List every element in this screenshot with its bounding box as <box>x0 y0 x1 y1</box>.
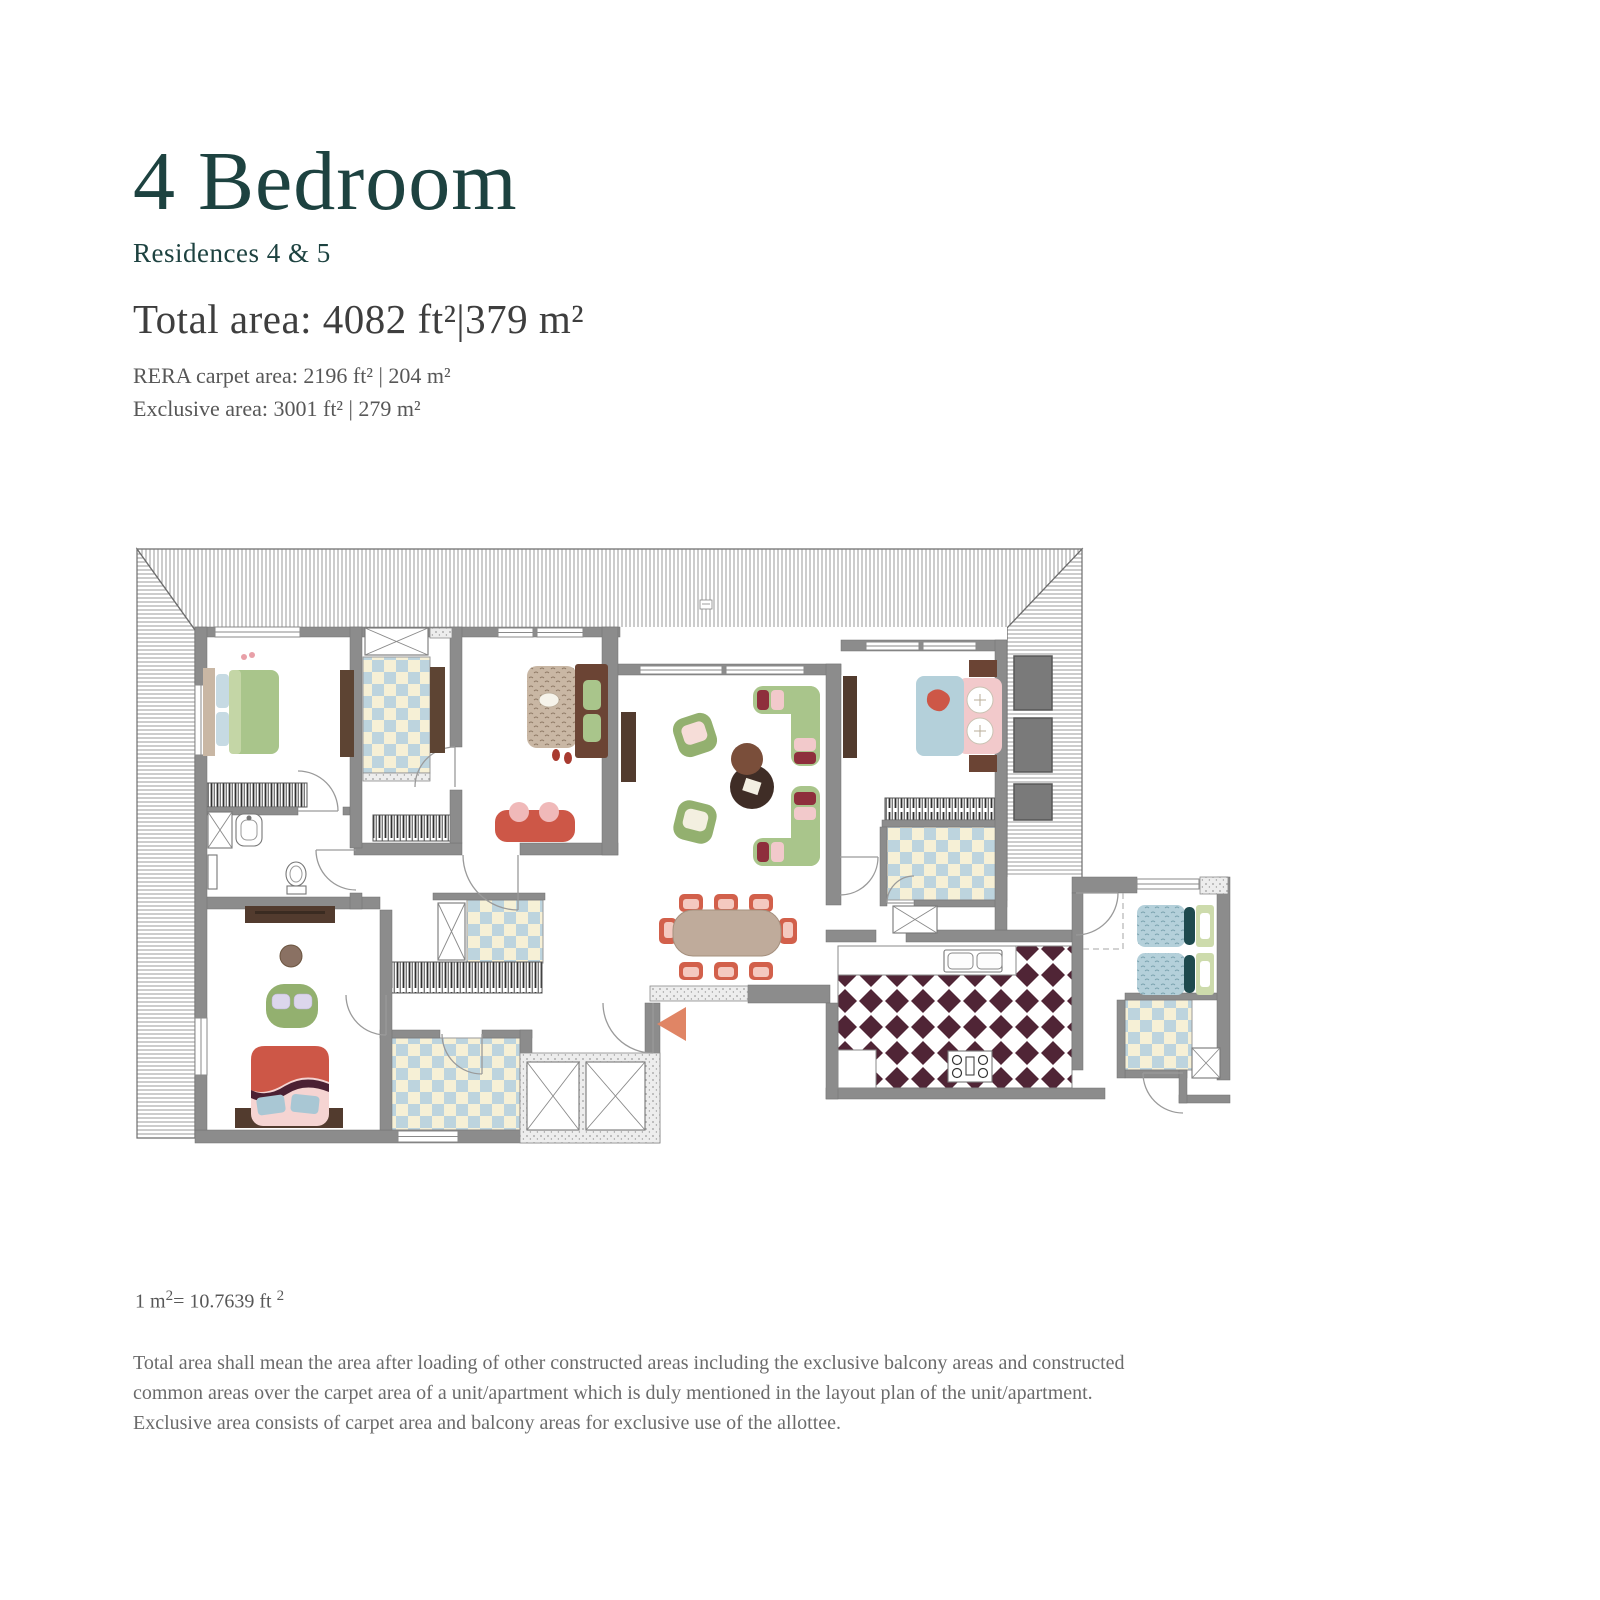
terrace-planters <box>1014 656 1052 820</box>
conversion-note: 1 m2= 10.7639 ft 2 <box>135 1288 284 1314</box>
sleeping-cat-icon <box>539 693 559 707</box>
staff-bath-floor <box>1125 1000 1192 1070</box>
kitchen-counter <box>838 1050 876 1088</box>
dining-table <box>673 910 781 956</box>
tv-console-master <box>843 676 857 758</box>
entry-wall-speckled <box>650 986 748 1001</box>
elevators <box>520 1053 660 1143</box>
bedroom4-armchair <box>266 984 318 1028</box>
disclaimer-text: Total area shall mean the area after loa… <box>133 1348 1133 1438</box>
planter-1 <box>1014 656 1052 710</box>
bedroom4-bath-floor <box>390 1038 520 1130</box>
terrace-hatch-left <box>137 549 195 1138</box>
planter-3 <box>1014 784 1052 820</box>
stove-icon <box>948 1051 992 1082</box>
staff-bed-2 <box>1137 953 1214 995</box>
master-bath-floor <box>887 827 1007 900</box>
corridor-bath-floor <box>467 900 543 963</box>
wardrobe-bedroom2 <box>373 815 453 841</box>
tv-console-living <box>621 712 636 782</box>
staff-bed-1 <box>1137 905 1214 947</box>
floor-drain-icon <box>700 600 712 609</box>
bed4-double-bed <box>235 1046 343 1128</box>
wardrobe-master <box>885 798 997 820</box>
stool-icon <box>280 945 302 967</box>
wardrobe-bedroom4 <box>385 962 542 993</box>
ensuite-bath-floor <box>363 657 430 773</box>
planter-2 <box>1014 718 1052 772</box>
wardrobe-bedroom1 <box>207 783 307 807</box>
bedroom4-console <box>245 906 335 923</box>
bed1-headboard <box>203 668 215 756</box>
coffee-table-brown <box>731 743 763 775</box>
bedroom2-sofa <box>495 810 575 842</box>
staff-wall-pier <box>1200 877 1228 894</box>
shower-icon <box>208 855 217 889</box>
brochure-page: 4 Bedroom Residences 4 & 5 Total area: 4… <box>0 0 1600 1600</box>
